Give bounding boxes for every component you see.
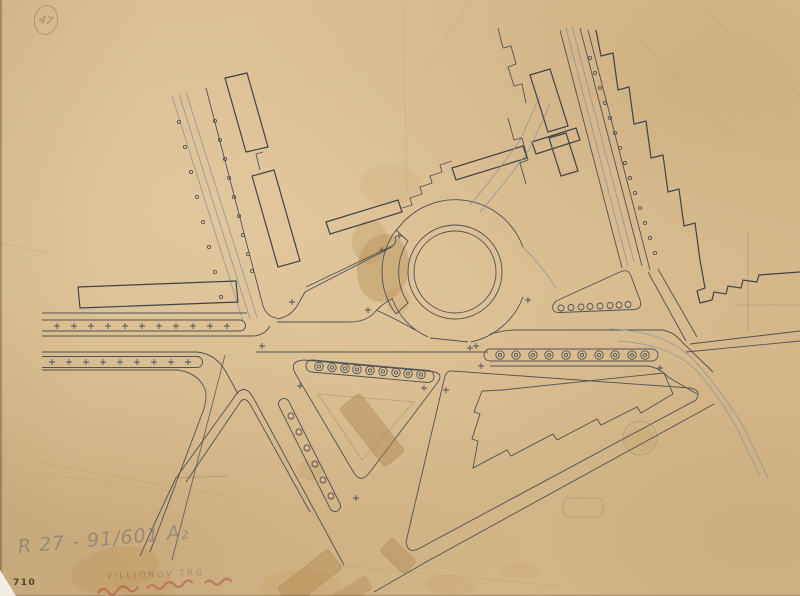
east-median-tree-circles xyxy=(496,351,649,359)
island-tree-circles xyxy=(558,302,631,312)
northeast-island xyxy=(553,271,641,313)
west-long-building xyxy=(78,281,238,308)
northeast-street xyxy=(470,26,800,341)
drawing-sheet: 47 R 27 - 91/601 A₂ 710 VILLJONOV TRG xyxy=(0,0,800,596)
corner-plus-marks xyxy=(259,233,663,501)
southeast-block xyxy=(374,371,714,592)
main-street-east xyxy=(256,310,800,478)
corner-mark-text: 47 xyxy=(38,12,54,27)
site-plan-drawing xyxy=(0,0,800,596)
median-tree-plus-marks xyxy=(49,323,230,365)
fork-tree-circles xyxy=(288,413,334,499)
roundabout xyxy=(382,200,556,342)
northeast-street-tree-dots xyxy=(588,56,656,254)
print-number: 710 xyxy=(13,578,36,588)
tape-patches xyxy=(277,393,416,596)
main-street-west xyxy=(42,313,270,552)
sheet-left-edge xyxy=(0,0,3,596)
